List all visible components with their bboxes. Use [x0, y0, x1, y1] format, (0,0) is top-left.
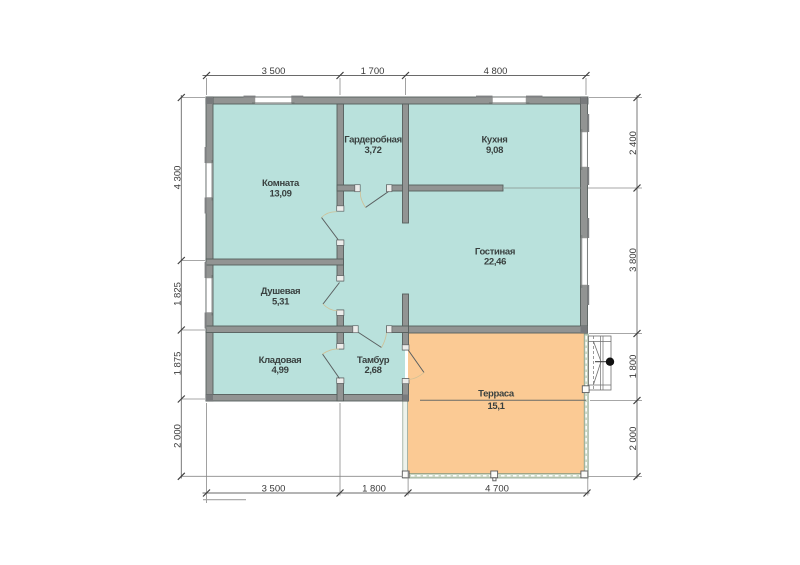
svg-text:15,1: 15,1: [487, 401, 505, 412]
svg-text:2 400: 2 400: [628, 131, 639, 155]
svg-text:1 800: 1 800: [628, 355, 639, 379]
svg-text:Гардеробная: Гардеробная: [344, 135, 402, 146]
svg-text:4 800: 4 800: [484, 66, 508, 77]
svg-text:4 300: 4 300: [172, 166, 183, 190]
svg-text:5,31: 5,31: [272, 297, 290, 308]
svg-text:3 500: 3 500: [262, 484, 286, 495]
svg-text:Душевая: Душевая: [261, 286, 300, 297]
svg-text:2,68: 2,68: [364, 365, 381, 376]
svg-text:3 800: 3 800: [628, 248, 639, 272]
svg-text:4,99: 4,99: [271, 365, 288, 376]
svg-text:1 700: 1 700: [361, 66, 385, 77]
svg-text:13,09: 13,09: [269, 189, 291, 200]
svg-text:Кухня: Кухня: [481, 135, 507, 146]
svg-text:9,08: 9,08: [486, 145, 503, 156]
svg-text:2 000: 2 000: [628, 427, 639, 451]
svg-text:3,72: 3,72: [364, 145, 381, 156]
svg-text:4 700: 4 700: [485, 484, 509, 495]
svg-text:Комната: Комната: [262, 178, 300, 189]
svg-text:1 875: 1 875: [172, 352, 183, 376]
svg-text:2 000: 2 000: [172, 424, 183, 448]
svg-text:Терраса: Терраса: [478, 389, 515, 400]
svg-text:1 825: 1 825: [172, 282, 183, 306]
svg-text:1 800: 1 800: [362, 484, 386, 495]
svg-text:3 500: 3 500: [262, 66, 286, 77]
svg-text:22,46: 22,46: [484, 256, 506, 267]
